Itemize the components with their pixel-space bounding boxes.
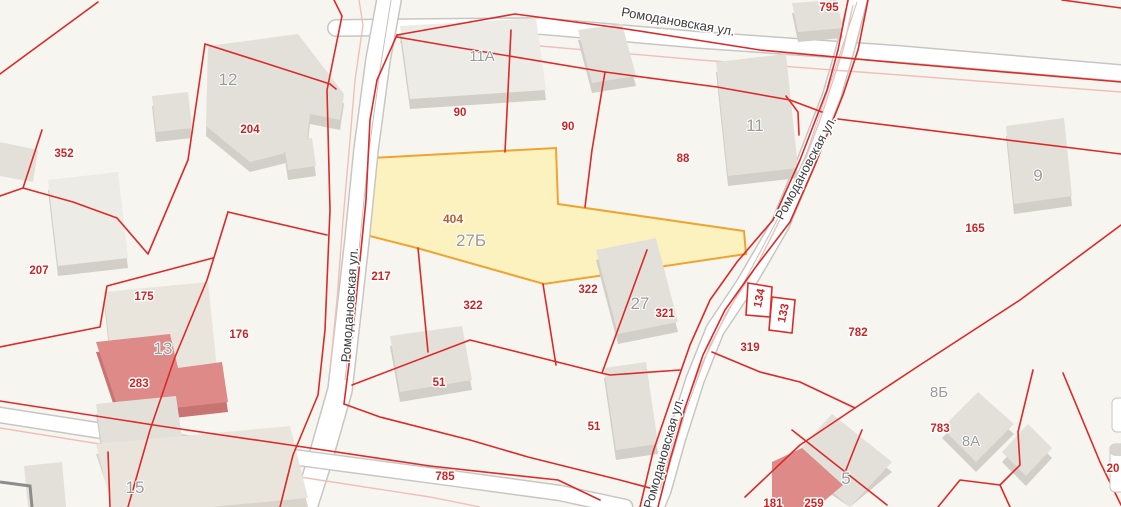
parcel-label-322b: 322 (578, 284, 597, 296)
parcel-label-204: 204 (240, 124, 260, 136)
parcel-label-322a: 322 (463, 300, 482, 312)
building-label-5: 5 (841, 469, 850, 488)
edge-structure-2-band (1110, 444, 1121, 456)
parcel-label-165: 165 (965, 223, 985, 235)
parcel-label-404: 404 (443, 212, 463, 226)
building-12-annex (152, 92, 192, 142)
parcel-label-259: 259 (804, 498, 823, 507)
parcel-label-20: 20 (1107, 463, 1120, 475)
building-label-11: 11 (746, 116, 764, 135)
parcel-label-352: 352 (54, 148, 73, 160)
cadastral-map[interactable]: Ромодановская ул. Ромодановская ул. Ромо… (0, 0, 1121, 507)
building-label-8b: 8Б (930, 384, 948, 401)
parcel-label-88: 88 (677, 153, 690, 165)
building-label-9: 9 (1033, 166, 1042, 185)
building-label-27b: 27Б (456, 231, 486, 250)
building-label-11a: 11А (469, 48, 495, 65)
parcel-label-321: 321 (655, 308, 675, 320)
parcel-label-782: 782 (848, 327, 867, 339)
building-207 (48, 172, 128, 276)
parcel-label-783: 783 (930, 423, 949, 435)
parcel-label-176: 176 (229, 329, 248, 341)
edge-structures (1110, 398, 1121, 492)
building-51 (390, 326, 472, 402)
edge-structure-1 (1112, 398, 1121, 432)
building-label-27: 27 (631, 294, 650, 313)
building-label-15: 15 (126, 478, 145, 497)
building-label-12: 12 (219, 70, 238, 89)
parcel-label-283: 283 (129, 378, 148, 390)
parcel-label-795: 795 (819, 2, 839, 14)
parcel-label-90b: 90 (562, 121, 575, 133)
map-canvas[interactable]: Ромодановская ул. Ромодановская ул. Ромо… (0, 0, 1121, 507)
parcel-label-319: 319 (740, 342, 759, 354)
parcel-label-51a: 51 (433, 377, 446, 389)
parcel-label-51b: 51 (588, 421, 601, 433)
parcel-label-217: 217 (371, 271, 390, 283)
parcel-label-181: 181 (763, 498, 783, 507)
parcel-label-785: 785 (435, 471, 455, 483)
parcel-label-207: 207 (29, 265, 48, 277)
building-label-13: 13 (154, 339, 173, 358)
parcel-label-90a: 90 (454, 107, 467, 119)
building-label-8a: 8А (962, 433, 980, 450)
building-12-annex2 (284, 138, 316, 180)
parcel-label-175: 175 (134, 291, 154, 303)
